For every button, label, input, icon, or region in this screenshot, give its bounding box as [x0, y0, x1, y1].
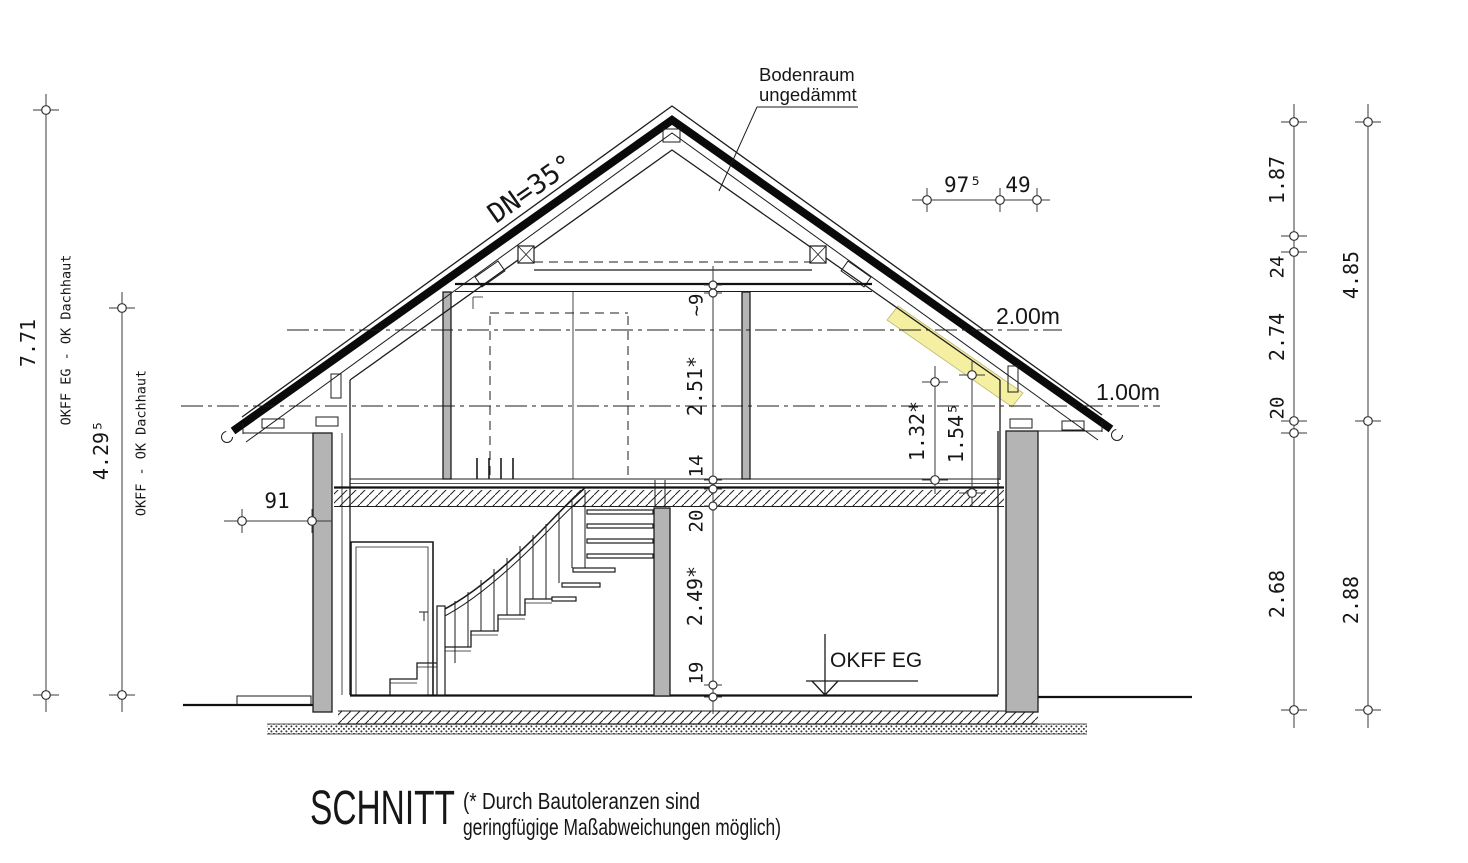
winder-tread — [587, 554, 653, 558]
eave-beam-block — [316, 417, 338, 426]
dim-left-total — [33, 94, 59, 712]
level-1m-label: 1.00m — [1096, 379, 1160, 405]
leader-line — [719, 107, 858, 191]
dim-right-inner-1: 24 — [1267, 256, 1289, 279]
terrain-lines — [183, 696, 1192, 705]
dim-right-inner-0: 1.87 — [1265, 156, 1289, 204]
winder-tread — [552, 597, 576, 601]
stair-opening-dashed — [490, 313, 628, 477]
winder-tread — [573, 568, 615, 572]
dim-top-right-0: 97⁵ — [944, 173, 982, 197]
dim-right-inner-4: 2.68 — [1265, 570, 1289, 618]
dim-center-3: 20 — [686, 510, 708, 533]
winder-tread — [587, 539, 653, 543]
stair-guard-posts — [477, 458, 513, 479]
dim-right-outer-1: 2.88 — [1339, 576, 1363, 624]
newel-post — [437, 606, 445, 695]
dim-attic-0: 1.32* — [905, 401, 929, 461]
attic-post-left — [443, 292, 451, 479]
ridge-beam-block — [663, 129, 680, 142]
drawing-title: SCHNITT — [310, 782, 455, 835]
okff-eg-label: OKFF EG — [830, 649, 922, 672]
dim-center-4: 2.49* — [683, 566, 707, 626]
dim-center-2: 14 — [686, 455, 708, 478]
section-drawing-page: 2.00m 1.00m OKFF EG Bodenraum ungedämmt … — [0, 0, 1468, 863]
ground-floor-slab — [338, 696, 1038, 725]
dim-top-right-1: 49 — [1005, 173, 1030, 197]
drawing-note-line1: (* Durch Bautoleranzen sind — [463, 788, 700, 814]
gutter-left — [222, 432, 233, 443]
dim-right-outer — [1355, 104, 1381, 728]
winder-tread — [587, 510, 653, 514]
gf-interior-wall — [654, 508, 670, 696]
roof — [222, 106, 1123, 443]
dim-attic-1: 1.54⁵ — [944, 403, 968, 463]
attic-interior — [455, 246, 872, 479]
dim-left-upper — [109, 292, 135, 712]
dim-center-0: ~9 — [686, 294, 708, 317]
eave-beam-block — [1010, 419, 1032, 428]
balusters — [455, 501, 572, 663]
dim-left-upper-value: 4.29⁵ — [89, 420, 113, 480]
bodenraum-label-line1: Bodenraum — [759, 64, 855, 85]
dim-right-outer-0: 4.85 — [1339, 251, 1363, 299]
attic-floor-slab — [334, 479, 1004, 507]
attic-post-right — [742, 292, 750, 479]
winder-tread — [587, 524, 653, 528]
staircase — [390, 487, 653, 695]
dim-center-1: 2.51* — [683, 356, 707, 416]
left-exterior-wall — [313, 433, 332, 712]
drawing-note-line2: geringfügige Maßabweichungen möglich) — [463, 814, 781, 840]
gutter-right — [1112, 430, 1123, 441]
stair-steps — [390, 597, 552, 695]
dim-eave-offset-value: 91 — [264, 489, 289, 513]
bodenraum-label-line2: ungedämmt — [759, 84, 857, 105]
right-exterior-wall — [1006, 431, 1038, 712]
knee-purlin-left — [331, 374, 341, 398]
foundation-subbase — [267, 724, 1087, 734]
dim-right-inner-3: 20 — [1267, 397, 1289, 420]
dim-left-total-label: OKFF EG - OK Dachhaut — [59, 255, 75, 426]
door-handle — [419, 612, 428, 621]
eave-beam-block — [262, 419, 284, 428]
dim-right-inner-2: 2.74 — [1265, 313, 1289, 361]
interior-door — [351, 542, 433, 695]
dim-left-total-value: 7.71 — [16, 319, 40, 367]
section-drawing-canvas: 2.00m 1.00m OKFF EG Bodenraum ungedämmt … — [0, 0, 1468, 863]
winder-tread — [562, 583, 600, 587]
level-2m-label: 2.00m — [996, 303, 1060, 329]
bodenraum-annotation — [719, 107, 858, 191]
dim-left-upper-label: OKFF - OK Dachhaut — [134, 370, 150, 516]
dim-center-5: 19 — [686, 662, 708, 685]
